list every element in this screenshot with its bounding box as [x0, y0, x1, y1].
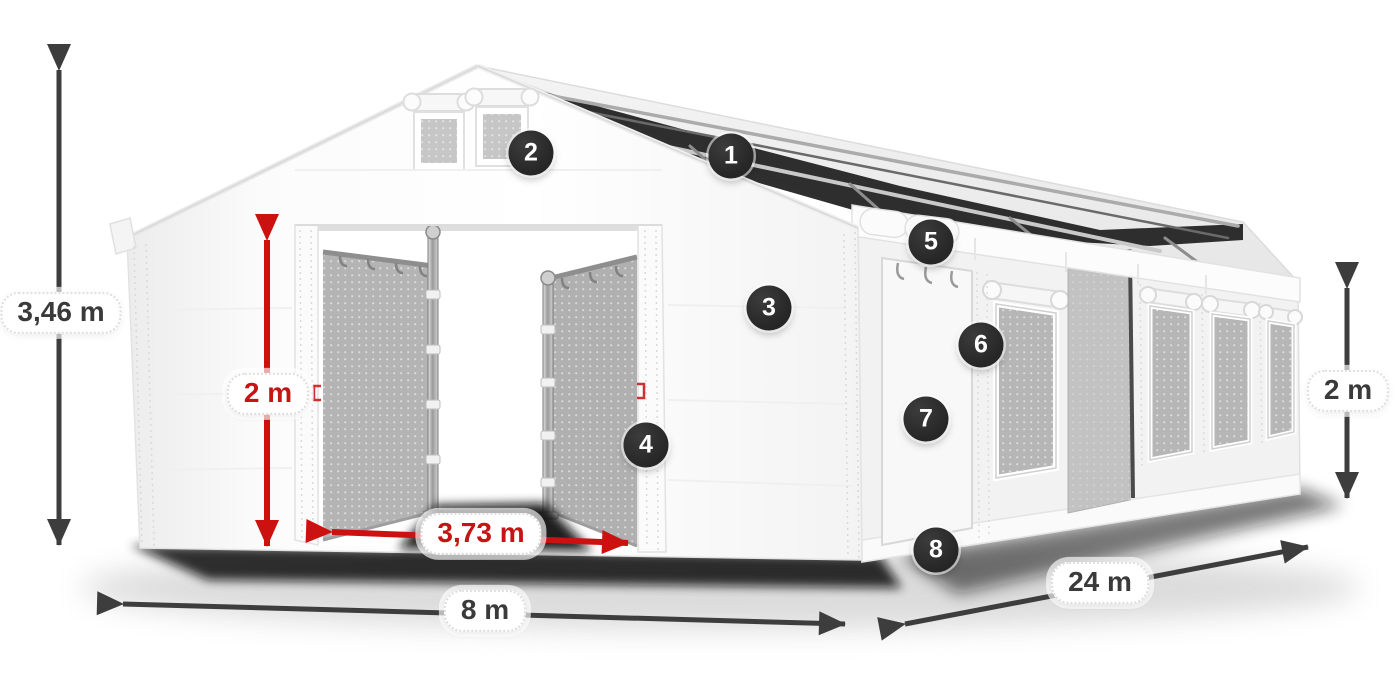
dimension-label-total-height: 3,46 m [0, 292, 121, 334]
feature-badge-6: 6 [959, 323, 1004, 368]
dimension-label-door-width: 3,73 m [420, 513, 541, 555]
side-gray-bay [1068, 249, 1135, 513]
side-window-2 [1140, 287, 1202, 460]
mesh-panel-right [547, 257, 637, 546]
feature-badge-1: 1 [709, 134, 754, 179]
dimension-label-side-height: 2 m [1307, 370, 1389, 412]
mesh-panel-left [323, 252, 433, 540]
gable-vent-left [404, 94, 475, 171]
dimension-label-length: 24 m [1051, 562, 1149, 604]
tent-illustration [0, 0, 1400, 700]
feature-badge-4: 4 [624, 423, 669, 468]
entrance [295, 170, 666, 552]
side-window-1 [983, 281, 1069, 478]
feature-badge-8: 8 [914, 528, 959, 573]
tent-diagram-stage: 3,46 m 2 m 3,73 m 8 m 24 m 2 m 1 2 3 4 5… [0, 0, 1400, 700]
side-window-3 [1202, 296, 1260, 449]
dimension-label-door-height: 2 m [227, 373, 309, 415]
entrance-jamb-right [638, 225, 666, 552]
dimension-label-width: 8 m [444, 590, 526, 632]
feature-badge-2: 2 [509, 131, 554, 176]
feature-badge-7: 7 [904, 397, 949, 442]
feature-badge-3: 3 [747, 286, 792, 331]
left-eave-cap [110, 218, 136, 254]
feature-badge-5: 5 [909, 220, 954, 265]
